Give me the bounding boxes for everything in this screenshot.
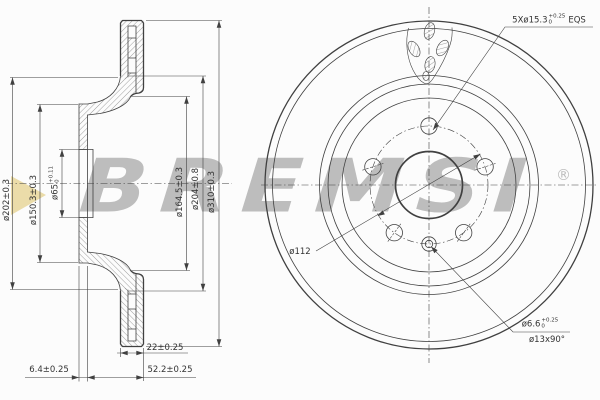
front-view [261,7,598,363]
brake-disc-technical-drawing: BREMSI ® [0,0,600,400]
dimension-lines-left [10,21,222,382]
drawing-canvas [0,0,600,400]
